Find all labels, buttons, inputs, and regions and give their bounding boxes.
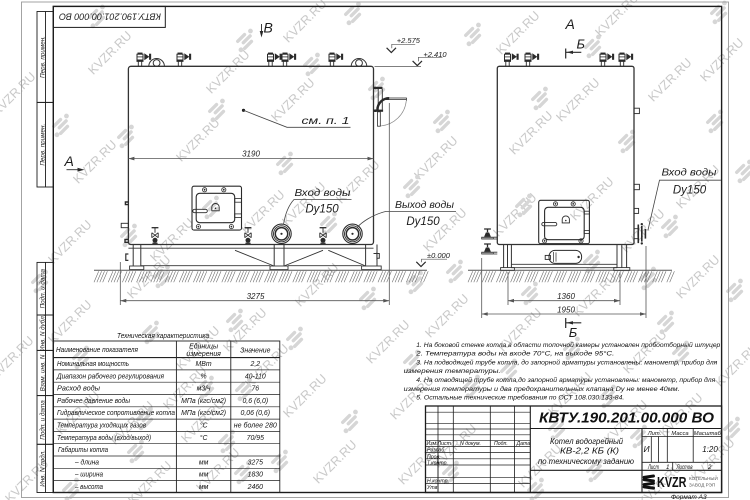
svg-text:Номинальная мощность: Номинальная мощность [57, 361, 129, 368]
svg-text:мм: мм [199, 484, 209, 491]
svg-text:KVZR: KVZR [657, 474, 687, 491]
svg-text:Н.контр.: Н.контр. [427, 479, 449, 485]
svg-text:Значение: Значение [240, 348, 270, 355]
svg-text:КВ-2,2 КБ (К): КВ-2,2 КБ (К) [560, 446, 619, 455]
svg-text:Наименование показателя: Наименование показателя [56, 347, 138, 354]
svg-text:3275: 3275 [247, 292, 265, 301]
svg-text:1950: 1950 [557, 305, 575, 314]
svg-text:Формат А3: Формат А3 [671, 494, 707, 500]
svg-text:Утв.: Утв. [427, 485, 439, 491]
svg-text:±0.000: ±0.000 [427, 251, 451, 260]
svg-text:– ширина: – ширина [74, 472, 103, 479]
svg-text:70/95: 70/95 [247, 435, 264, 442]
svg-text:Dy150: Dy150 [673, 185, 707, 197]
svg-text:не более 280: не более 280 [234, 422, 277, 430]
svg-text:76: 76 [251, 386, 259, 393]
svg-text:Лит.: Лит. [647, 431, 662, 437]
svg-text:Пров.: Пров. [427, 454, 441, 460]
svg-text:°С: °С [200, 434, 209, 442]
svg-text:3275: 3275 [248, 459, 263, 466]
svg-text:см. п. 1: см. п. 1 [302, 115, 350, 127]
svg-text:измерения температуры и два пр: измерения температуры и два предохраните… [404, 385, 680, 393]
svg-text:МПа (кгс/см2): МПа (кгс/см2) [181, 398, 226, 405]
svg-text:КВТУ.190.201.00.000 ВО: КВТУ.190.201.00.000 ВО [59, 12, 161, 22]
svg-text:Б: Б [577, 37, 586, 52]
svg-text:измерения: измерения [186, 351, 221, 358]
svg-text:Котел водогрейный: Котел водогрейный [550, 437, 624, 446]
svg-text:5. Остальные технические треб: 5. Остальные технические требования по О… [416, 394, 624, 402]
svg-text:°С: °С [200, 422, 209, 430]
svg-text:А: А [565, 16, 575, 32]
svg-text:– высота: – высота [74, 484, 103, 491]
svg-text:Температура уходящих газов: Температура уходящих газов [57, 422, 146, 430]
svg-text:измерения температуры.: измерения температуры. [404, 368, 501, 375]
svg-text:Лист: Лист [647, 464, 659, 471]
svg-text:Габариты котла: Габариты котла [58, 446, 108, 454]
svg-text:А: А [64, 153, 74, 169]
svg-text:1360: 1360 [557, 292, 575, 301]
svg-text:Листов: Листов [676, 464, 693, 471]
svg-text:ЗАВОД РЭП: ЗАВОД РЭП [689, 483, 715, 488]
svg-text:Гидравлическое сопротивление к: Гидравлическое сопротивление котла [57, 409, 175, 417]
svg-text:40-110: 40-110 [245, 373, 266, 380]
svg-text:Инв. N дубл.: Инв. N дубл. [38, 314, 46, 350]
svg-text:МВт: МВт [196, 361, 212, 368]
svg-text:м3/ч: м3/ч [197, 386, 211, 393]
svg-text:Подп. и дата: Подп. и дата [38, 268, 46, 308]
svg-text:Б: Б [569, 325, 578, 340]
svg-text:по техническому заданию: по техническому заданию [538, 457, 634, 466]
svg-text:Взам. инв. N: Взам. инв. N [39, 354, 46, 391]
svg-text:Выход воды: Выход воды [395, 199, 454, 211]
svg-text:Масса: Масса [671, 431, 689, 437]
svg-text:Вход воды: Вход воды [662, 167, 717, 179]
svg-text:мм: мм [199, 459, 209, 466]
svg-text:Масштаб: Масштаб [694, 431, 722, 437]
svg-text:Температура воды (вход/выход): Температура воды (вход/выход) [57, 434, 151, 442]
svg-text:2: 2 [707, 464, 712, 471]
svg-text:Изм.Лист: Изм.Лист [427, 441, 452, 447]
svg-text:Техническая характеристика: Техническая характеристика [117, 331, 209, 340]
svg-text:МПа (кгс/см2): МПа (кгс/см2) [181, 410, 226, 417]
svg-text:мм: мм [199, 472, 209, 479]
svg-text:4. На отводящей трубе котла,д: 4. На отводящей трубе котла,до запорной … [416, 376, 716, 384]
svg-text:Рабочее давление воды: Рабочее давление воды [57, 397, 130, 405]
svg-text:3190: 3190 [242, 150, 260, 159]
svg-text:Перв. примен.: Перв. примен. [39, 124, 46, 166]
svg-text:N докум.: N докум. [460, 441, 481, 447]
svg-text:0,06 (0,6): 0,06 (0,6) [241, 410, 271, 417]
svg-text:– длина: – длина [74, 458, 99, 466]
svg-text:Подп.: Подп. [494, 441, 508, 447]
svg-text:Подп. и дата: Подп. и дата [38, 400, 46, 440]
svg-text:Единицы: Единицы [189, 343, 218, 351]
svg-text:2. Температура воды на входе: 2. Температура воды на входе 70°С, на вы… [415, 350, 614, 358]
svg-text:Т.контр.: Т.контр. [427, 461, 448, 467]
svg-text:2,2: 2,2 [250, 361, 261, 368]
svg-text:КВТУ.190.201.00.000 ВО: КВТУ.190.201.00.000 ВО [539, 411, 715, 427]
svg-text:1830: 1830 [248, 472, 263, 479]
svg-text:1:20: 1:20 [702, 445, 718, 454]
svg-text:+2.575: +2.575 [397, 36, 421, 45]
svg-text:Расход воды: Расход воды [57, 385, 100, 393]
svg-text:3. На подводящей трубе котла,: 3. На подводящей трубе котла, до запорно… [416, 359, 718, 367]
svg-text:В: В [264, 20, 273, 36]
svg-text:Дата: Дата [516, 441, 531, 447]
svg-text:Dy150: Dy150 [406, 216, 440, 228]
svg-text:Перв. примен.: Перв. примен. [39, 36, 46, 78]
svg-text:0,6 (6,0): 0,6 (6,0) [242, 398, 268, 405]
svg-text:Вход воды: Вход воды [295, 187, 351, 199]
svg-text:КОТЕЛЬНЫЙ: КОТЕЛЬНЫЙ [689, 474, 718, 481]
svg-text:2460: 2460 [247, 484, 263, 491]
svg-text:1: 1 [666, 464, 669, 471]
svg-text:Инв. N подл.: Инв. N подл. [38, 450, 46, 487]
svg-text:Dy150: Dy150 [305, 204, 339, 216]
svg-text:Диапазон рабочего регулировани: Диапазон рабочего регулирования [56, 372, 164, 380]
svg-text:И: И [643, 444, 650, 454]
svg-text:Разраб.: Разраб. [427, 448, 446, 454]
svg-text:%: % [201, 373, 207, 380]
svg-text:1. На боковой стенке котла в: 1. На боковой стенке котла в области топ… [416, 341, 720, 349]
